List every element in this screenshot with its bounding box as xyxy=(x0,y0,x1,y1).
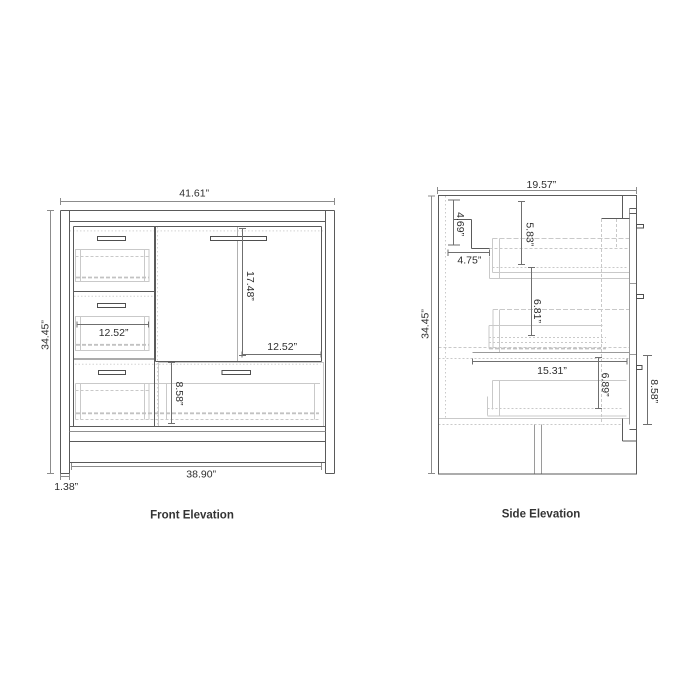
svg-text:17.48”: 17.48” xyxy=(244,271,256,301)
svg-text:12.52”: 12.52” xyxy=(267,341,297,353)
svg-text:4.69”: 4.69” xyxy=(454,212,466,236)
svg-text:1.38”: 1.38” xyxy=(54,481,78,493)
svg-text:4.75”: 4.75” xyxy=(457,254,481,266)
svg-text:38.90”: 38.90” xyxy=(186,469,216,481)
svg-text:Side Elevation: Side Elevation xyxy=(502,509,581,521)
svg-text:8.58”: 8.58” xyxy=(648,379,660,403)
svg-text:8.58”: 8.58” xyxy=(173,382,185,406)
svg-text:Front Elevation: Front Elevation xyxy=(150,510,234,522)
svg-text:19.57”: 19.57” xyxy=(527,179,557,191)
svg-text:34.45”: 34.45” xyxy=(420,309,432,339)
svg-text:15.31”: 15.31” xyxy=(537,365,567,377)
svg-text:12.52”: 12.52” xyxy=(99,327,129,339)
svg-text:5.83”: 5.83” xyxy=(524,222,536,246)
svg-text:6.81”: 6.81” xyxy=(531,299,543,323)
svg-text:41.61”: 41.61” xyxy=(179,188,209,200)
svg-text:34.45”: 34.45” xyxy=(39,320,51,350)
svg-text:6.89”: 6.89” xyxy=(599,373,611,397)
